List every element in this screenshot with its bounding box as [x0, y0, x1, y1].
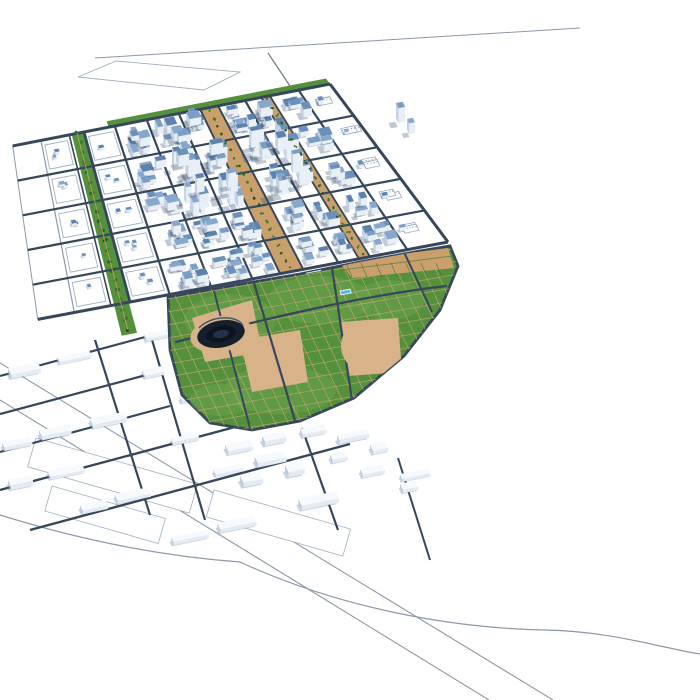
circus-dome	[341, 320, 393, 372]
masterplan-render	[0, 0, 700, 700]
courtyard-parcel	[52, 175, 82, 204]
courtyard-parcel	[72, 277, 106, 306]
courtyard-parcel	[45, 141, 73, 170]
civic-plaza	[240, 330, 308, 392]
